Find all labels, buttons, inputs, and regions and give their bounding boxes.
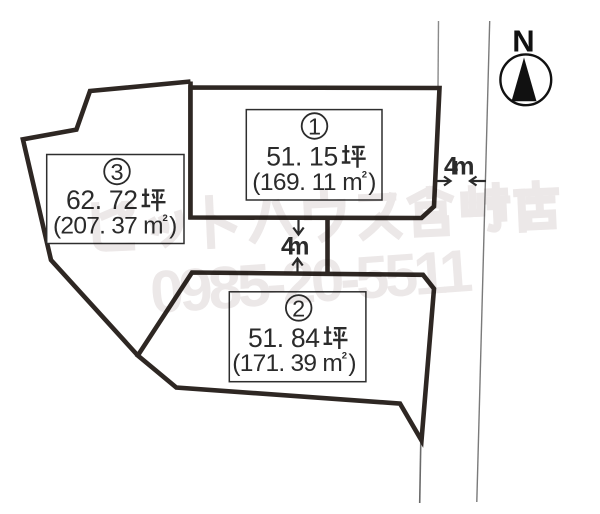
svg-text:): ) [368,169,376,196]
svg-text:2: 2 [362,170,367,181]
svg-text:1: 1 [308,114,321,140]
svg-text:51. 15: 51. 15 [266,142,338,172]
svg-text:51. 84: 51. 84 [248,323,320,353]
svg-text:N: N [512,23,534,58]
svg-text:3: 3 [110,159,123,185]
svg-text:(169. 11 m: (169. 11 m [252,169,363,196]
svg-text:(171. 39 m: (171. 39 m [232,350,342,377]
svg-text:2: 2 [342,351,347,362]
svg-text:4m: 4m [444,153,475,181]
svg-text:): ) [348,350,356,377]
